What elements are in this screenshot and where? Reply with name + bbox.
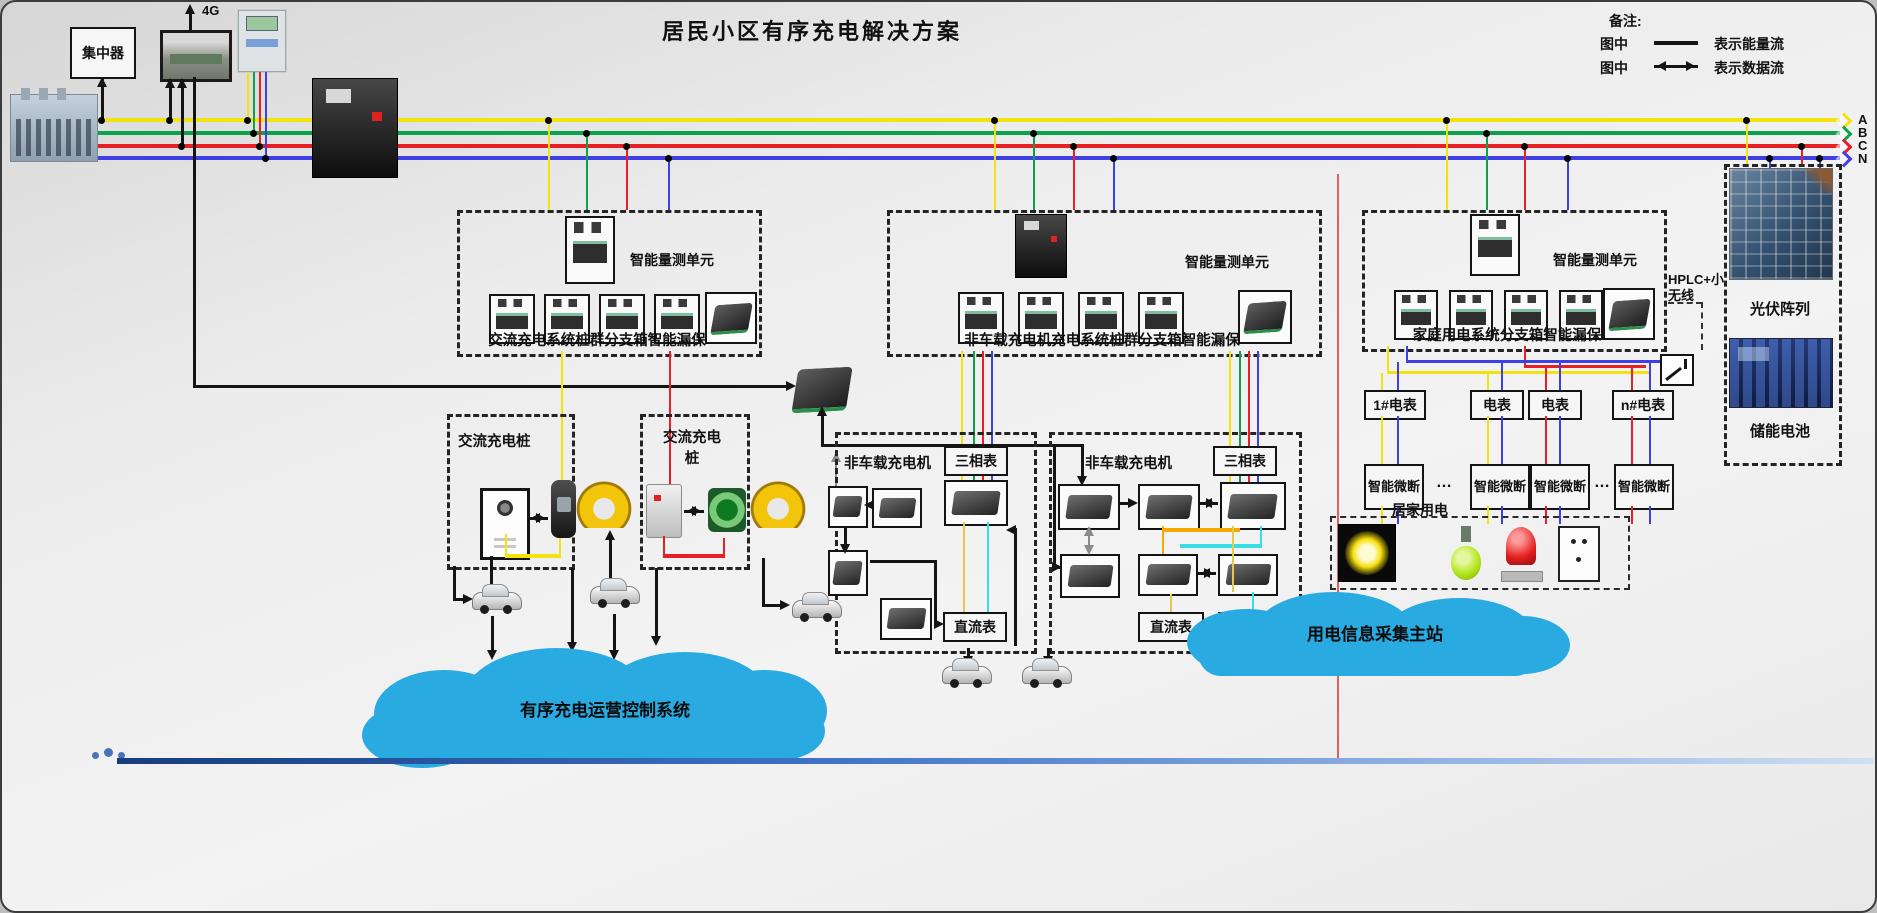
charger-module-device	[828, 550, 868, 596]
arrow-icon	[1128, 498, 1138, 508]
meter-2-box: 电表	[1470, 390, 1524, 420]
legend-data-prefix: 图中	[1600, 58, 1628, 78]
breaker-device	[565, 216, 615, 284]
wire	[1232, 526, 1234, 592]
meter-3-box: 电表	[1528, 390, 1582, 420]
drop-wire	[1113, 160, 1115, 210]
junction-dot	[256, 143, 263, 150]
junction-dot	[178, 143, 185, 150]
wire	[259, 72, 261, 146]
wire	[1053, 444, 1056, 568]
wire	[1631, 416, 1633, 464]
footer-dot	[104, 748, 113, 757]
legend-energy-label: 表示能量流	[1714, 34, 1784, 54]
energy-wire	[505, 534, 507, 556]
junction-dot	[991, 117, 998, 124]
data-trunk-horizontal	[193, 385, 788, 388]
drop-wire	[626, 148, 628, 210]
energy-wire	[559, 538, 561, 556]
measure-caption-dc: 非车载充电机充电系统桩群分支箱智能漏保	[907, 329, 1297, 350]
main-breaker-device	[312, 78, 398, 178]
wire	[181, 80, 184, 146]
wire	[1081, 444, 1084, 478]
meter-wire	[1501, 362, 1503, 390]
breaker-ellipsis: …	[1594, 474, 1610, 492]
energy-wire	[1260, 526, 1262, 546]
green-bulb-icon	[1450, 526, 1482, 580]
rail-wire	[1524, 346, 1526, 367]
charger-module-device	[944, 480, 1008, 526]
breaker-device	[1470, 214, 1520, 276]
wire	[1381, 416, 1383, 464]
breaker-ellipsis: …	[1436, 474, 1452, 492]
junction-dot	[583, 130, 590, 137]
arrow-icon	[1077, 476, 1087, 486]
measure-unit-label-3: 智能量测单元	[1553, 250, 1637, 270]
junction-dot	[1110, 155, 1117, 162]
junction-dot	[1798, 143, 1805, 150]
arrow-icon	[165, 78, 175, 88]
concentrator-device	[160, 30, 232, 82]
arrow-icon	[817, 406, 827, 416]
charger-module-device	[1138, 554, 1198, 596]
legend-heading: 备注:	[1609, 11, 1642, 31]
ac-pile-1-label: 交流充电桩	[458, 430, 531, 451]
ev-car	[792, 600, 842, 618]
drop-wire	[1033, 135, 1035, 210]
meter-wire	[1487, 373, 1489, 390]
pv-array-image	[1729, 168, 1833, 280]
wire	[987, 522, 989, 612]
wire	[1170, 594, 1172, 612]
wire	[609, 536, 612, 580]
junction-dot	[1443, 117, 1450, 124]
control-cloud-label: 有序充电运营控制系统	[490, 696, 720, 721]
arrow-icon	[1084, 526, 1094, 536]
smart-breaker-box: 智能微断	[1470, 464, 1530, 510]
battery-image	[1729, 338, 1833, 408]
drop-wire	[1746, 122, 1748, 166]
dc-charger-2-label: 非车载充电机	[1085, 452, 1172, 473]
wire	[870, 560, 936, 563]
meter-wire	[1545, 367, 1547, 390]
rail-wire	[1406, 360, 1662, 363]
arrow-icon	[605, 530, 615, 540]
junction-dot	[1743, 117, 1750, 124]
footer-dot	[92, 752, 99, 759]
junction-dot	[262, 155, 269, 162]
hplc-label: HPLC+小无线	[1668, 272, 1726, 305]
charger-module-device	[1220, 482, 1286, 530]
4g-label: 4G	[202, 3, 219, 18]
drop-wire	[1567, 160, 1569, 210]
drop-wire	[1446, 122, 1448, 210]
data-link-arrow-icon	[528, 517, 548, 520]
legend-energy-line-icon	[1654, 41, 1698, 45]
wire	[453, 566, 456, 600]
ev-car	[590, 586, 640, 604]
smart-breaker-box: 智能微断	[1530, 464, 1590, 510]
arrow-icon	[934, 619, 944, 629]
energy-wire	[505, 554, 561, 558]
wire	[844, 526, 847, 546]
junction-dot	[1766, 155, 1773, 162]
junction-dot	[623, 143, 630, 150]
portable-charger-device	[551, 480, 576, 538]
master-cloud-label: 用电信息采集主站	[1280, 620, 1470, 645]
smart-meter-device	[238, 10, 286, 72]
charger-module-device	[872, 488, 922, 528]
data-trunk-vertical	[193, 77, 196, 387]
socket-panel-icon	[1558, 526, 1600, 582]
hplc-module-icon	[1660, 354, 1694, 386]
meter-wire	[1649, 362, 1651, 390]
wire	[253, 72, 255, 133]
bus-label-N: N	[1858, 151, 1867, 166]
data-link-arrow-icon	[1200, 502, 1218, 505]
alarm-light-icon	[1500, 524, 1542, 582]
phase-meter-box: 三相表	[1213, 446, 1277, 476]
wire	[1487, 416, 1489, 464]
wire	[1014, 528, 1017, 646]
legend-energy-prefix: 图中	[1600, 34, 1628, 54]
wire	[1545, 416, 1547, 464]
battery-label: 储能电池	[1729, 420, 1831, 441]
arrow-icon	[651, 636, 661, 646]
drop-wire	[994, 122, 996, 210]
ac-pile-2-label: 交流充电桩	[662, 426, 722, 468]
arrow-icon	[487, 650, 497, 660]
junction-dot	[1030, 130, 1037, 137]
wire	[963, 522, 965, 612]
wire	[571, 568, 574, 644]
arrow-icon	[177, 78, 187, 88]
hplc-dash-v	[1701, 302, 1703, 350]
charger-module-device	[1058, 484, 1120, 530]
measure-caption-home: 家庭用电系统分支箱智能漏保	[1377, 324, 1637, 345]
meter-wire	[1381, 373, 1383, 390]
home-usage-label: 居家用电	[1392, 500, 1448, 520]
data-link-arrow-icon	[1198, 572, 1216, 575]
dc-charger-1-label: 非车载充电机	[844, 452, 931, 473]
measure-unit-label-2: 智能量测单元	[1185, 252, 1269, 272]
charger-module-device	[880, 598, 932, 640]
ev-car	[1022, 666, 1072, 684]
arrow-icon	[1084, 545, 1094, 555]
drop-wire	[668, 160, 670, 210]
cable-coil-device	[576, 480, 632, 528]
junction-dot	[1564, 155, 1571, 162]
wire	[613, 614, 616, 652]
arrow-icon	[1052, 562, 1062, 572]
arrow-icon	[97, 77, 107, 87]
meter-1-box: 1#电表	[1364, 390, 1426, 420]
junction-dot	[166, 117, 173, 124]
page-title: 居民小区有序充电解决方案	[662, 14, 962, 46]
arrow-icon	[840, 544, 850, 554]
rail-wire	[1524, 365, 1646, 368]
control-board-device	[708, 488, 746, 532]
4g-uplink-line	[189, 12, 192, 30]
wire	[1631, 506, 1633, 524]
wire	[934, 560, 937, 624]
legend-data-label: 表示数据流	[1714, 58, 1784, 78]
drop-wire	[586, 135, 588, 210]
pv-label: 光伏阵列	[1729, 298, 1831, 319]
concentrator-box: 集中器	[70, 27, 136, 79]
energy-wire	[1162, 528, 1240, 532]
rail-wire	[1387, 371, 1650, 374]
wire	[1649, 416, 1651, 464]
drop-wire	[1073, 148, 1075, 210]
footer-bar	[117, 758, 1874, 764]
wire	[762, 558, 765, 606]
wire	[1559, 416, 1561, 464]
drop-wire	[1486, 135, 1488, 210]
dc-meter-box: 直流表	[943, 612, 1007, 642]
meter-wire	[1397, 362, 1399, 390]
energy-wire	[663, 536, 665, 556]
junction-dot	[1070, 143, 1077, 150]
transformer-device	[10, 94, 98, 162]
lamp-icon	[1338, 524, 1396, 582]
wire	[491, 616, 494, 652]
charger-module-device	[1218, 554, 1278, 596]
smart-breaker-box: 智能微断	[1614, 464, 1674, 510]
cable-coil-device	[750, 480, 806, 528]
arrow-icon	[864, 500, 874, 510]
rail-wire	[1387, 346, 1389, 373]
wire	[1397, 416, 1399, 464]
charger-module-device	[828, 486, 868, 528]
hplc-dash-h	[1668, 302, 1702, 304]
junction-dot	[98, 117, 105, 124]
meter-wire	[1559, 362, 1561, 390]
measure-caption-ac: 交流充电系统桩群分支箱智能漏保	[457, 329, 737, 350]
junction-dot	[250, 130, 257, 137]
wire	[1501, 416, 1503, 464]
energy-wire	[1180, 544, 1262, 548]
measure-unit-label-1: 智能量测单元	[630, 250, 714, 270]
drop-wire	[548, 122, 550, 210]
phase-meter-box: 三相表	[944, 446, 1008, 476]
ev-car	[942, 666, 992, 684]
data-link-arrow-icon	[684, 510, 704, 513]
charger-module-device	[1138, 484, 1200, 530]
wire	[1649, 506, 1651, 524]
legend-data-arrow-icon	[1654, 65, 1698, 68]
wire	[655, 568, 658, 638]
meter-n-box: n#电表	[1612, 390, 1674, 420]
wire	[247, 72, 249, 120]
meter-wire	[1631, 367, 1633, 390]
energy-wire	[663, 554, 725, 558]
diagram-canvas: 居民小区有序充电解决方案 备注: 图中 表示能量流 图中 表示数据流 A B C…	[0, 0, 1877, 913]
junction-dot	[244, 117, 251, 124]
drop-wire	[1524, 148, 1526, 210]
junction-dot	[545, 117, 552, 124]
junction-dot	[1483, 130, 1490, 137]
ev-car	[472, 592, 522, 610]
charger-module-device	[1060, 554, 1120, 598]
energy-wire	[1162, 526, 1164, 554]
junction-dot	[1816, 155, 1823, 162]
breaker-device	[1015, 214, 1067, 278]
energy-wire	[723, 538, 725, 556]
junction-dot	[1521, 143, 1528, 150]
wire	[265, 72, 267, 158]
arrow-icon	[780, 600, 790, 610]
junction-dot	[665, 155, 672, 162]
4g-uplink-arrow-icon	[185, 4, 195, 14]
wallbox-device	[646, 484, 682, 538]
